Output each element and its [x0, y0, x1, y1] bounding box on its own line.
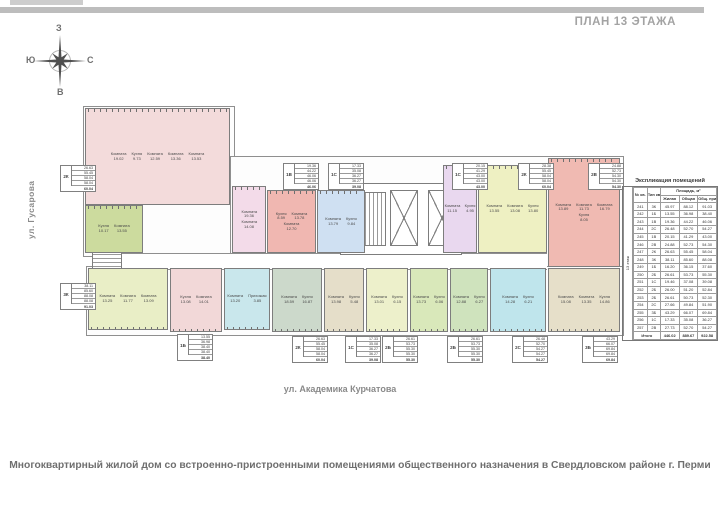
room-label: Комната 14.08 [241, 220, 256, 229]
room-label: Кухня 9.84 [346, 217, 357, 226]
unit-info-box: 2С 26.48 52.70 54.27 54.27 54.27 [512, 336, 548, 363]
cell-reduced-area: 88.08 [698, 256, 717, 264]
cell-living-area: 26.63 [660, 248, 679, 256]
cell-apt-number: 249 [633, 263, 647, 271]
room-area: 13.79 [325, 222, 341, 227]
cell-apt-number: 245 [633, 233, 647, 241]
cell-total-area: 36.98 [679, 210, 698, 218]
room-label: Комната 11.73 [576, 203, 592, 212]
explication-row: 249 1Б 16.20 36.15 37.60 [633, 263, 716, 271]
room-label: Комната 19.36 [241, 210, 256, 219]
explication-row: 241 3К 45.97 88.12 91.03 [633, 203, 716, 211]
cell-reduced-area: 37.60 [698, 263, 717, 271]
unit-area-total: 55.30 [383, 357, 417, 362]
compass-rose-icon [33, 34, 87, 88]
room-label: Комната 13.01 [371, 295, 387, 304]
cell-total-area: 37.08 [679, 279, 698, 287]
unit-type-label: 1В [284, 164, 295, 184]
cell-living-area: 45.97 [660, 203, 679, 211]
room-area: 13.89 [555, 207, 571, 212]
total-living: 446.02 [660, 332, 679, 340]
room-area: 14.01 [196, 300, 212, 305]
elevator-shaft-icon [390, 190, 418, 246]
apartment-unit: Комната 13.98 Кухня 5.48 [324, 268, 364, 332]
cell-apt-type: 2Б [647, 286, 660, 294]
explication-table: № кв. Тип кв. Площадь, м² Жилая Общая Об… [633, 187, 717, 340]
street-label-gusarova: ул. Гусарова [26, 168, 36, 252]
unit-type-label: 2К [61, 166, 72, 186]
room-label: Прихожая 3.85 [248, 294, 267, 303]
explication-row: 247 2К 26.63 55.45 58.04 [633, 248, 716, 256]
room-area: 13.80 [528, 209, 539, 214]
cell-apt-number: 241 [633, 203, 647, 211]
cell-apt-number: 256 [633, 317, 647, 325]
title-bar-segment [10, 0, 83, 5]
cell-living-area: 19.36 [660, 218, 679, 226]
room-area: 4.95 [465, 209, 476, 214]
room-area: 8.05 [579, 218, 590, 223]
cell-total-area: 52.70 [679, 324, 698, 332]
apartment-unit: Комната 19.02 Кухня 9.73 Комната 12.59 К… [85, 108, 230, 205]
cell-reduced-area: 51.90 [698, 301, 717, 309]
room-label: Кухня 6.21 [523, 295, 534, 304]
unit-area-total: 60.04 [61, 186, 95, 191]
cell-living-area: 17.33 [660, 317, 679, 325]
room-label: Комната 12.59 [147, 152, 163, 161]
room-area: 19.02 [111, 157, 127, 162]
room-label: Комната 13.35 [579, 295, 595, 304]
cell-living-area: 27.73 [660, 324, 679, 332]
cell-apt-number: 248 [633, 256, 647, 264]
compass-label-top: З [56, 23, 62, 33]
room-label: Кухня 16.87 [302, 295, 313, 304]
cell-total-area: 53.73 [679, 271, 698, 279]
room-label: Комната 13.25 [99, 294, 115, 303]
apartment-unit: Кухня 13.08 Комната 14.01 [170, 268, 222, 332]
cell-apt-number: 257 [633, 324, 647, 332]
room-area: 12.70 [284, 227, 300, 232]
room-area: 13.08 [507, 209, 523, 214]
cell-living-area: 43.29 [660, 309, 679, 317]
cell-living-area: 24.88 [660, 241, 679, 249]
room-area: 13.08 [180, 300, 191, 305]
explication-row: 246 2В 24.88 52.73 54.30 [633, 241, 716, 249]
room-label: Кухня 8.05 [579, 213, 590, 222]
apartment-unit: Комната 14.28 Кухня 6.21 [490, 268, 546, 332]
unit-info-box: 2К 26.63 55.45 58.04 58.04 60.04 [292, 336, 328, 363]
room-area: 6.06 [434, 300, 445, 305]
unit-area-total: 39.08 [346, 357, 380, 362]
room-label: Комната 14.28 [502, 295, 518, 304]
room-area: 6.27 [474, 300, 485, 305]
room-area: 13.36 [168, 157, 184, 162]
room-area: 14.86 [599, 300, 610, 305]
unit-area-total: 69.84 [583, 357, 617, 362]
col-header-total: Общая [679, 195, 698, 203]
total-reduced: 922.58 [698, 332, 717, 340]
room-label: Кухня 10.17 [98, 224, 109, 233]
apartment-unit: Комната 19.36 Комната 14.08 [232, 186, 266, 253]
cell-reduced-area: 39.08 [698, 279, 717, 287]
room-label: Комната 13.73 [413, 295, 429, 304]
room-area: 3.85 [248, 299, 267, 304]
cell-reduced-area: 43.00 [698, 233, 717, 241]
unit-info-box: 1В 19.36 44.22 46.06 46.06 46.06 [283, 163, 319, 190]
unit-area-total: 39.08 [329, 184, 363, 189]
unit-info-box: 1С 17.33 35.08 36.27 36.27 39.08 [328, 163, 364, 190]
room-label: Комната 13.79 [325, 217, 341, 226]
explication-row: 251 1С 19.46 37.08 39.08 [633, 279, 716, 287]
unit-type-label: 3Б [583, 337, 594, 357]
cell-apt-type: 3К [647, 256, 660, 264]
unit-info-box: 2К 26.63 55.45 58.04 58.04 60.04 [60, 165, 96, 192]
cell-apt-type: 3Б [647, 309, 660, 317]
room-area: 6.15 [392, 300, 403, 305]
room-area: 13.98 [328, 300, 344, 305]
unit-type-label: 2К [519, 164, 530, 184]
cell-total-area: 36.15 [679, 263, 698, 271]
cell-apt-number: 242 [633, 210, 647, 218]
apartment-unit: Комната 13.79 Кухня 9.84 [317, 190, 365, 253]
cell-apt-type: 2Б [647, 294, 660, 302]
cell-apt-type: 2Б [647, 271, 660, 279]
room-label: Комната 13.20 [227, 294, 243, 303]
explication-row: 253 2Б 26.61 50.73 52.30 [633, 294, 716, 302]
cell-total-area: 51.20 [679, 286, 698, 294]
room-area: 12.88 [453, 300, 469, 305]
room-area: 9.84 [346, 222, 357, 227]
total-label: Итого [633, 332, 660, 340]
page-title: ПЛАН 13 ЭТАЖА [575, 16, 676, 28]
apartment-unit: Кухня 10.17 Комната 13.55 [85, 205, 143, 253]
room-label: Комната 13.53 [189, 152, 205, 161]
cell-apt-type: 1С [647, 279, 660, 287]
room-label: Комната 11.77 [120, 294, 136, 303]
cell-apt-type: 2В [647, 324, 660, 332]
cell-reduced-area: 55.30 [698, 271, 717, 279]
apartment-unit: Кухня 8.59 Комната 13.78 Комната 12.70 [267, 190, 316, 253]
room-label: Комната 18.59 [281, 295, 297, 304]
room-area: 16.87 [302, 300, 313, 305]
cell-apt-type: 1Б [647, 263, 660, 271]
room-area: 12.59 [147, 157, 163, 162]
explication-title: Экспликация помещений [622, 178, 718, 184]
cell-apt-number: 244 [633, 225, 647, 233]
room-area: 14.08 [241, 225, 256, 230]
room-area: 13.55 [114, 229, 130, 234]
explication-row: 243 1В 19.36 44.22 46.06 [633, 218, 716, 226]
unit-type-label: 2Б [383, 337, 394, 357]
cell-apt-number: 247 [633, 248, 647, 256]
cell-total-area: 41.29 [679, 233, 698, 241]
cell-apt-type: 2С [647, 301, 660, 309]
room-area: 14.28 [502, 300, 518, 305]
room-area: 13.53 [189, 157, 205, 162]
cell-reduced-area: 54.27 [698, 324, 717, 332]
room-area: 13.55 [486, 209, 502, 214]
room-label: Комната 13.55 [114, 224, 130, 233]
floor-cell: 13 этаж [623, 187, 633, 340]
apartment-unit: Комната 12.88 Кухня 6.27 [450, 268, 488, 332]
cell-total-area: 35.08 [679, 317, 698, 325]
room-area: 16.79 [597, 207, 613, 212]
explication-row: 244 2С 26.48 52.70 54.27 [633, 225, 716, 233]
cell-total-area: 88.12 [679, 203, 698, 211]
cell-total-area: 55.45 [679, 248, 698, 256]
room-label: Комната 11.15 [445, 204, 460, 213]
unit-info-box: 1Б 13.55 36.98 38.40 38.40 38.40 [177, 334, 213, 361]
compass-label-right: С [87, 55, 94, 65]
col-header-apt: № кв. [633, 188, 647, 203]
room-area: 13.35 [579, 300, 595, 305]
apartment-unit: Комната 13.01 Кухня 6.15 [366, 268, 408, 332]
unit-type-label: 1С [453, 164, 464, 184]
unit-area-total: 60.04 [293, 357, 327, 362]
apartment-unit: Комната 15.08 Комната 13.35 Кухня 14.86 [548, 268, 620, 332]
cell-apt-type: 2В [647, 241, 660, 249]
cell-apt-type: 1В [647, 233, 660, 241]
room-label: Кухня 6.06 [434, 295, 445, 304]
room-label: Кухня 6.15 [392, 295, 403, 304]
room-label: Комната 13.78 [292, 212, 308, 221]
room-area: 13.25 [99, 299, 115, 304]
cell-apt-type: 3К [647, 203, 660, 211]
unit-type-label: 2Б [448, 337, 459, 357]
room-area: 13.09 [141, 299, 157, 304]
unit-type-label: 2К [293, 337, 304, 357]
cell-reduced-area: 46.06 [698, 218, 717, 226]
room-label: Кухня 13.08 [180, 295, 191, 304]
cell-living-area: 16.20 [660, 263, 679, 271]
room-label: Кухня 5.48 [349, 295, 360, 304]
cell-reduced-area: 36.27 [698, 317, 717, 325]
room-label: Кухня 4.95 [465, 204, 476, 213]
room-area: 13.73 [413, 300, 429, 305]
room-area: 15.08 [558, 300, 574, 305]
unit-info-box: 1С 20.15 41.29 43.00 43.00 43.00 [452, 163, 488, 190]
room-label: Комната 13.09 [141, 294, 157, 303]
explication-total-row: Итого 446.02 889.67 922.58 [633, 332, 716, 340]
explication-row: 257 2В 27.73 52.70 54.27 [633, 324, 716, 332]
cell-total-area: 50.73 [679, 294, 698, 302]
cell-apt-number: 243 [633, 218, 647, 226]
room-area: 18.59 [281, 300, 297, 305]
room-area: 9.73 [131, 157, 142, 162]
room-label: Комната 12.88 [453, 295, 469, 304]
unit-area-total: 43.00 [453, 184, 487, 189]
unit-info-box: 1С 17.33 35.08 36.27 36.27 39.08 [345, 336, 381, 363]
apartment-unit: Комната 18.59 Кухня 16.87 [272, 268, 322, 332]
unit-info-box: 2Б 26.61 53.73 55.30 55.30 55.30 [382, 336, 418, 363]
room-label: Комната 15.08 [558, 295, 574, 304]
cell-apt-number: 251 [633, 279, 647, 287]
explication-panel: Экспликация помещений 13 этаж № кв. Тип … [622, 178, 718, 341]
explication-row: 252 2Б 26.00 51.20 52.84 [633, 286, 716, 294]
unit-type-label: 1С [346, 337, 357, 357]
cell-total-area: 52.70 [679, 225, 698, 233]
cell-living-area: 26.61 [660, 271, 679, 279]
cell-apt-number: 254 [633, 301, 647, 309]
room-area: 13.01 [371, 300, 387, 305]
cell-reduced-area: 54.27 [698, 225, 717, 233]
room-label: Кухня 8.59 [276, 212, 287, 221]
explication-row: 242 1Б 13.55 36.98 38.40 [633, 210, 716, 218]
room-area: 5.48 [349, 300, 360, 305]
total-total: 889.67 [679, 332, 698, 340]
unit-area-total: 54.30 [589, 184, 623, 189]
title-bar [0, 7, 704, 13]
room-label: Комната 13.98 [328, 295, 344, 304]
cell-living-area: 19.46 [660, 279, 679, 287]
explication-row: 256 1С 17.33 35.08 36.27 [633, 317, 716, 325]
room-label: Кухня 13.80 [528, 204, 539, 213]
apartment-unit: Комната 13.20 Прихожая 3.85 [224, 268, 270, 330]
unit-info-box: 3Б 43.29 66.07 69.84 69.84 69.84 [582, 336, 618, 363]
cell-living-area: 26.48 [660, 225, 679, 233]
compass-label-bottom: В [57, 87, 64, 97]
unit-type-label: 2В [589, 164, 600, 184]
unit-type-label: 1Б [178, 335, 189, 355]
cell-living-area: 27.66 [660, 301, 679, 309]
cell-apt-type: 2К [647, 248, 660, 256]
compass-label-left: Ю [26, 55, 35, 65]
sheet-caption: Многоквартирный жилой дом со встроенно-п… [0, 460, 720, 471]
col-header-type: Тип кв. [647, 188, 660, 203]
cell-reduced-area: 52.30 [698, 294, 717, 302]
cell-reduced-area: 91.03 [698, 203, 717, 211]
cell-apt-number: 250 [633, 271, 647, 279]
cell-living-area: 26.00 [660, 286, 679, 294]
cell-total-area: 85.60 [679, 256, 698, 264]
room-label: Кухня 14.86 [599, 295, 610, 304]
cell-apt-type: 1Б [647, 210, 660, 218]
cell-apt-type: 1В [647, 218, 660, 226]
room-area: 10.17 [98, 229, 109, 234]
apartment-unit: Комната 13.25 Комната 11.77 Комната 13.0… [88, 268, 168, 330]
room-label: Комната 12.70 [284, 222, 300, 231]
apartment-unit: Комната 13.73 Кухня 6.06 [410, 268, 448, 332]
room-label: Комната 16.79 [597, 203, 613, 212]
unit-area-total: 91.03 [61, 304, 95, 309]
cell-living-area: 20.15 [660, 233, 679, 241]
cell-apt-number: 255 [633, 309, 647, 317]
explication-row: 248 3К 38.11 85.60 88.08 [633, 256, 716, 264]
cell-total-area: 49.84 [679, 301, 698, 309]
floor-label: 13 этаж [625, 256, 630, 270]
col-header-reduced: Общ. прив. [698, 195, 717, 203]
unit-type-label: 2С [513, 337, 524, 357]
unit-info-box: 2Б 26.61 53.73 55.30 55.30 55.30 [447, 336, 483, 363]
explication-row: 255 3Б 43.29 66.07 69.84 [633, 309, 716, 317]
room-label: Кухня 9.73 [131, 152, 142, 161]
unit-info-box: 3К 38.11 85.60 88.08 88.08 91.03 [60, 283, 96, 310]
unit-type-label: 3К [61, 284, 72, 304]
room-label: Комната 13.36 [168, 152, 184, 161]
room-area: 13.20 [227, 299, 243, 304]
unit-area-total: 46.06 [284, 184, 318, 189]
cell-apt-number: 246 [633, 241, 647, 249]
room-label: Комната 14.01 [196, 295, 212, 304]
unit-area-total: 60.04 [519, 184, 553, 189]
cell-apt-type: 2С [647, 225, 660, 233]
cell-living-area: 38.11 [660, 256, 679, 264]
room-area: 6.21 [523, 300, 534, 305]
unit-area-total: 55.30 [448, 357, 482, 362]
cell-reduced-area: 58.04 [698, 248, 717, 256]
unit-info-box: 2К 28.38 55.45 58.04 58.04 60.04 [518, 163, 554, 190]
unit-info-box: 2В 24.88 52.73 54.30 54.30 54.30 [588, 163, 624, 190]
room-label: Кухня 6.27 [474, 295, 485, 304]
cell-living-area: 13.55 [660, 210, 679, 218]
room-area: 11.77 [120, 299, 136, 304]
cell-apt-number: 252 [633, 286, 647, 294]
unit-area-total: 54.27 [513, 357, 547, 362]
explication-row: 245 1В 20.15 41.29 43.00 [633, 233, 716, 241]
unit-area-total: 38.40 [178, 355, 212, 360]
cell-total-area: 52.73 [679, 241, 698, 249]
explication-row: 250 2Б 26.61 53.73 55.30 [633, 271, 716, 279]
cell-reduced-area: 69.84 [698, 309, 717, 317]
cell-total-area: 44.22 [679, 218, 698, 226]
cell-reduced-area: 52.84 [698, 286, 717, 294]
cell-living-area: 26.61 [660, 294, 679, 302]
room-label: Комната 13.55 [486, 204, 502, 213]
cell-reduced-area: 54.30 [698, 241, 717, 249]
room-area: 11.15 [445, 209, 460, 214]
cell-apt-type: 1С [647, 317, 660, 325]
cell-total-area: 66.07 [679, 309, 698, 317]
floor-plan-sheet: { "page": { "header": "ПЛАН 13 ЭТАЖА", "… [0, 0, 720, 509]
cell-reduced-area: 38.40 [698, 210, 717, 218]
street-label-kurchatova: ул. Академика Курчатова [60, 384, 620, 394]
room-label: Комната 13.08 [507, 204, 523, 213]
room-label: Комната 19.02 [111, 152, 127, 161]
room-label: Комната 13.89 [555, 203, 571, 212]
explication-row: 254 2С 27.66 49.84 51.90 [633, 301, 716, 309]
cell-apt-number: 253 [633, 294, 647, 302]
col-header-living: Жилая [660, 195, 679, 203]
unit-type-label: 1С [329, 164, 340, 184]
col-header-area-group: Площадь, м² [660, 188, 716, 196]
